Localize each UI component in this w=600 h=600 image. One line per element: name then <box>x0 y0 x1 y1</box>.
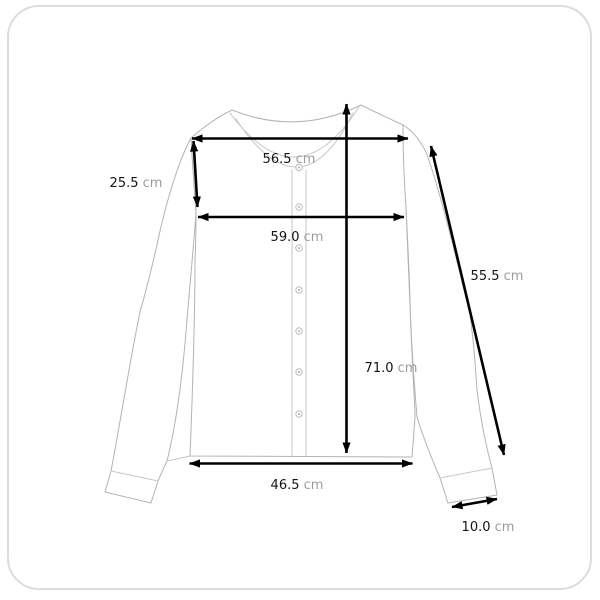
hem-width-label: 46.5 cm <box>271 478 324 493</box>
measurement-cuff-width: 10.0 cm <box>452 499 514 535</box>
armhole-depth-label: 25.5 cm <box>110 176 163 191</box>
total-length-label: 71.0 cm <box>365 361 418 376</box>
screenshot-root: 56.5 cm25.5 cm59.0 cm55.5 cm71.0 cm46.5 … <box>0 0 600 600</box>
shoulder-width-label: 56.5 cm <box>263 152 316 167</box>
left-underarm-notch <box>167 456 190 461</box>
cuff-width-label: 10.0 cm <box>462 520 515 535</box>
chest-width-label: 59.0 cm <box>271 230 324 245</box>
right-sleeve <box>403 125 497 503</box>
left-sleeve <box>105 138 196 503</box>
sleeve-length-label: 55.5 cm <box>471 269 524 284</box>
measurement-diagram: 56.5 cm25.5 cm59.0 cm55.5 cm71.0 cm46.5 … <box>0 0 600 600</box>
measurement-hem-width: 46.5 cm <box>190 464 413 494</box>
